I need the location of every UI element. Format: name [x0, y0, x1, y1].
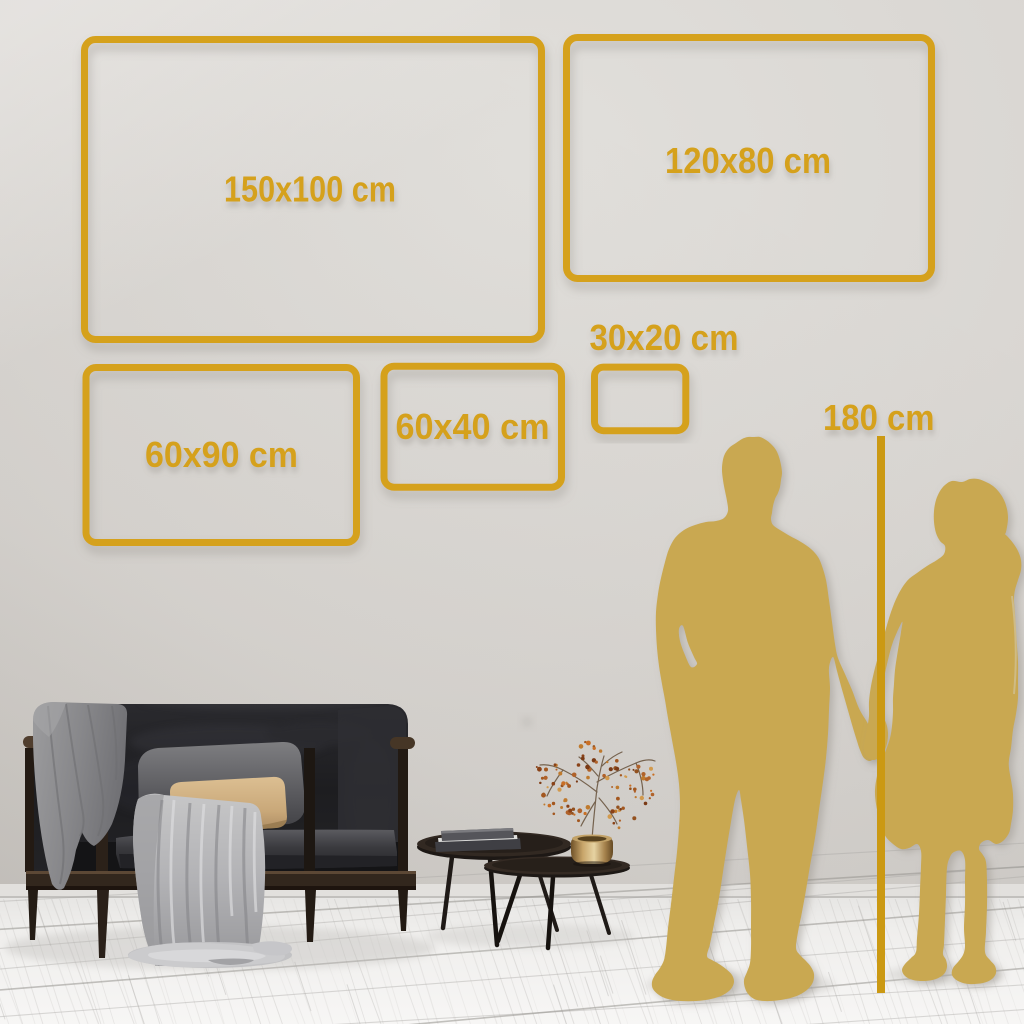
svg-text:60x90 cm: 60x90 cm [145, 434, 298, 475]
svg-text:150x100 cm: 150x100 cm [224, 169, 396, 210]
svg-text:120x80 cm: 120x80 cm [665, 140, 831, 181]
svg-text:30x20 cm: 30x20 cm [590, 317, 739, 358]
svg-text:60x40 cm: 60x40 cm [396, 406, 550, 447]
svg-text:180 cm: 180 cm [823, 397, 935, 438]
